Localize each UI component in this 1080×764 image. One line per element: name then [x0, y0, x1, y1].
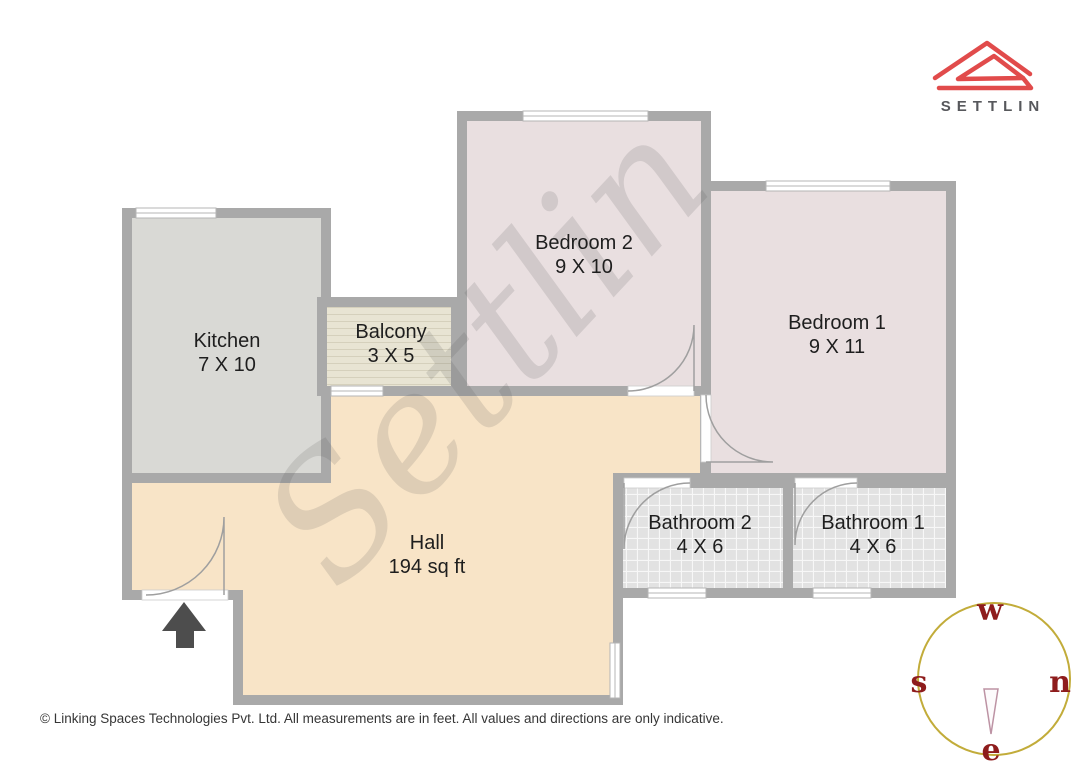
brand-name: SETTLIN	[941, 98, 1046, 115]
room-dims-hall: 194 sq ft	[389, 556, 466, 578]
footer-note: © Linking Spaces Technologies Pvt. Ltd. …	[40, 711, 724, 726]
room-dims-bathroom1: 4 X 6	[850, 536, 897, 558]
compass-letter-west: w	[976, 593, 1004, 628]
entrance-arrow-icon	[162, 602, 206, 648]
bedroom1-window	[766, 181, 890, 191]
bathroom1-window	[813, 588, 871, 598]
room-dims-kitchen: 7 X 10	[198, 354, 256, 376]
compass-letter-east: e	[981, 733, 1000, 764]
floorplan-canvas: Settlin Kitchen 7 X	[0, 0, 1080, 764]
room-label-bathroom2: Bathroom 2	[648, 512, 751, 534]
room-dims-bathroom2: 4 X 6	[677, 536, 724, 558]
room-label-bathroom1: Bathroom 1	[821, 512, 924, 534]
kitchen-window	[136, 208, 216, 218]
balcony-window	[331, 386, 383, 396]
compass-letter-north: n	[1049, 665, 1071, 700]
bathroom2-window	[648, 588, 706, 598]
room-label-bedroom2: Bedroom 2	[535, 232, 633, 254]
hall-window	[610, 643, 620, 698]
settlin-logo-icon	[935, 43, 1031, 88]
compass: w s n e	[911, 593, 1072, 764]
room-label-kitchen: Kitchen	[194, 330, 261, 352]
compass-needle-icon	[984, 689, 998, 734]
compass-letter-south: s	[911, 665, 928, 700]
floorplan-page: Settlin Kitchen 7 X	[0, 0, 1080, 764]
room-label-bedroom1: Bedroom 1	[788, 312, 886, 334]
room-dims-bedroom1: 9 X 11	[809, 336, 865, 358]
room-label-hall: Hall	[410, 532, 444, 554]
bedroom2-window	[523, 111, 648, 121]
room-label-balcony: Balcony	[355, 321, 426, 343]
room-dims-bedroom2: 9 X 10	[555, 256, 613, 278]
room-dims-balcony: 3 X 5	[368, 345, 415, 367]
